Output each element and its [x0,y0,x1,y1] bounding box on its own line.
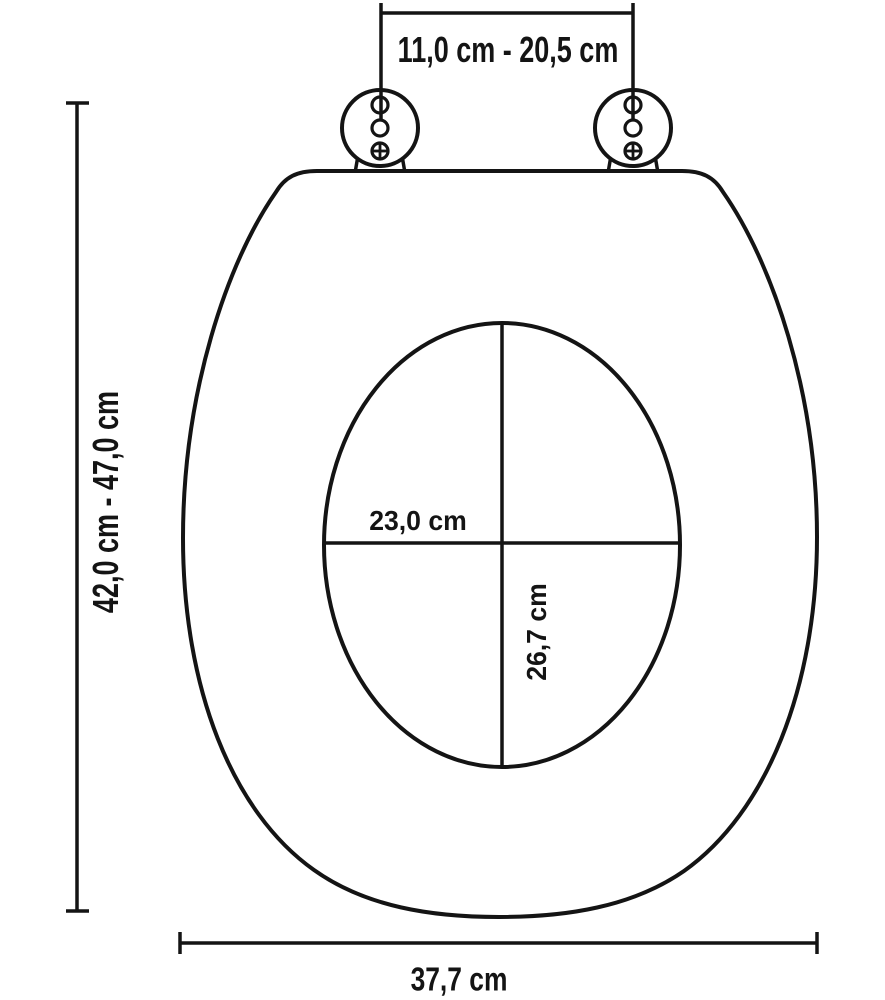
opening-width-label: 23,0 cm [369,507,467,535]
length-range-label: 42,0 cm - 47,0 cm [88,391,124,613]
bottom-dimension-line [180,932,817,954]
seat-line-drawing [0,0,885,1000]
dimension-diagram: 11,0 cm - 20,5 cm 42,0 cm - 47,0 cm 23,0… [0,0,885,1000]
hinge-hole-middle [625,120,641,136]
seat-width-label: 37,7 cm [411,963,508,996]
opening-length-label: 26,7 cm [523,583,551,681]
hinge-spacing-label: 11,0 cm - 20,5 cm [398,32,619,68]
hinge-hole-middle [372,120,388,136]
